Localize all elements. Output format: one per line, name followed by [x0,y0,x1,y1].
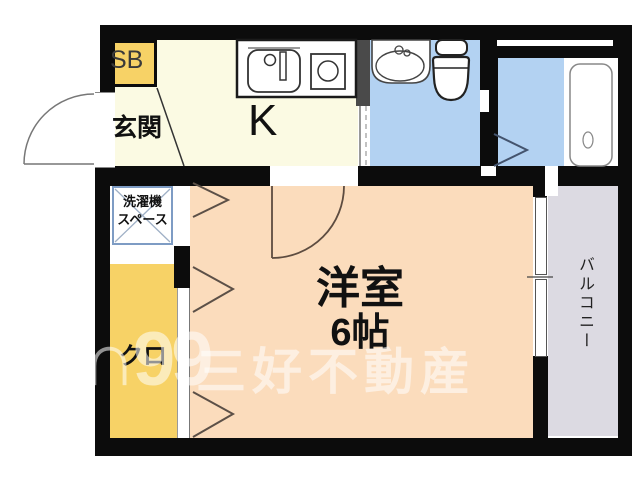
washer-space-label-line1: 洗濯機 [123,194,162,209]
watermark-logo: ∩99 [82,316,209,403]
storage-box-label: SB [110,46,143,75]
sink-faucet-lever [280,52,286,80]
balcony-label: バルコニー [572,256,596,351]
entrance-label: 玄関 [112,108,162,144]
closet-door-chevron-upper-icon [193,267,233,312]
washer-space-label-line2: スペース [117,212,167,227]
washer-door-chevron-icon [193,183,228,217]
floorplan: SB 玄関 K 洗濯機 スペース クロ 洋室 6帖 バルコニー ∩99 三好不動… [0,0,640,480]
bathtub [570,64,612,166]
kitchen-label: K [248,96,277,146]
washbasin-bowl [376,51,424,81]
shower-door-chevron-icon [494,134,527,166]
washer-space-label: 洗濯機 スペース [111,193,174,228]
toilet-tank [436,40,467,55]
floorplan-linework [0,0,640,480]
room-door-arc [272,186,344,258]
toilet-bowl [433,57,469,100]
watermark-company: 三好不動産 [196,332,476,404]
sink-faucet-icon [265,55,276,66]
kitchen-burner [311,54,345,89]
entrance-door-arc [24,94,94,164]
